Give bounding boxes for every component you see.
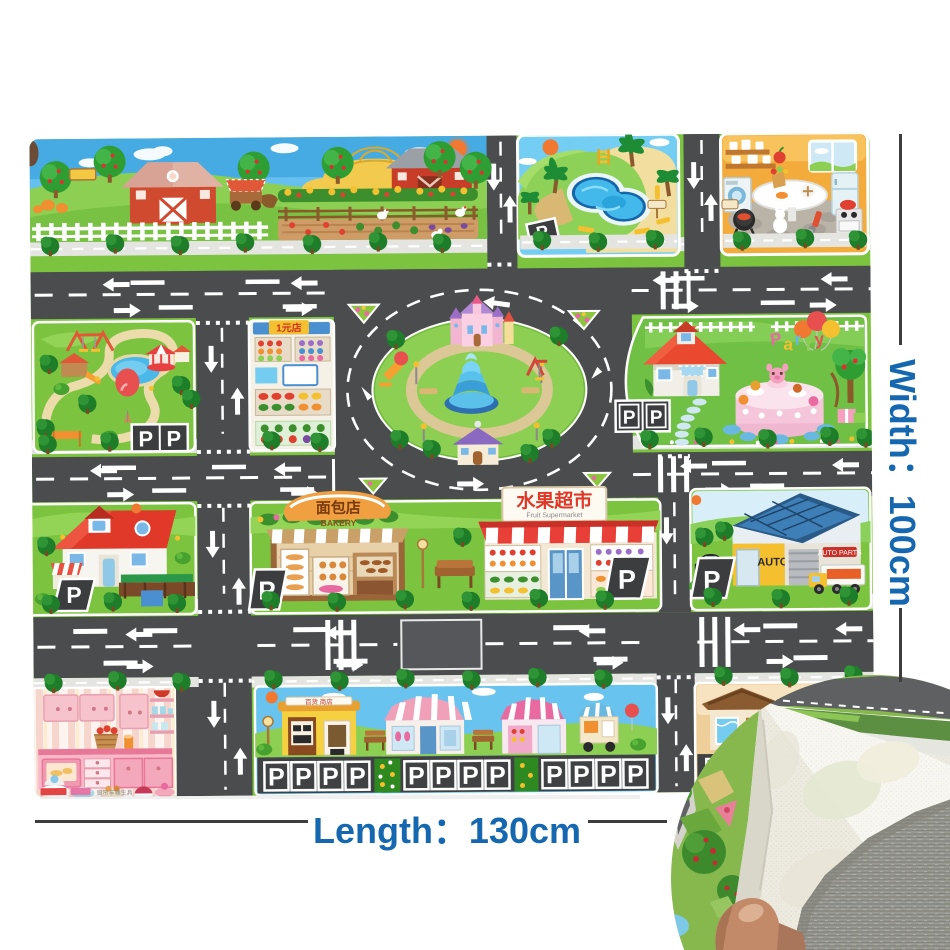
svg-text:P: P	[573, 761, 590, 789]
svg-text:P: P	[600, 761, 617, 789]
svg-text:百货 商店: 百货 商店	[305, 697, 333, 706]
svg-text:P: P	[349, 763, 366, 791]
svg-text:P: P	[435, 762, 452, 790]
svg-text:P: P	[546, 761, 563, 789]
svg-text:P: P	[268, 763, 285, 791]
svg-text:P: P	[462, 762, 479, 790]
svg-text:P: P	[650, 407, 663, 428]
svg-text:P: P	[166, 426, 181, 451]
svg-text:P: P	[295, 763, 312, 791]
svg-text:AUTO: AUTO	[757, 556, 789, 568]
svg-text:Fruit Supermarket: Fruit Supermarket	[526, 512, 582, 519]
svg-text:AUTO PARTS: AUTO PARTS	[818, 550, 862, 557]
svg-text:P: P	[618, 565, 636, 595]
svg-text:水果超市: 水果超市	[516, 489, 592, 513]
svg-text:P: P	[408, 762, 425, 790]
svg-text:P: P	[322, 763, 339, 791]
svg-text:1元店: 1元店	[276, 321, 302, 334]
svg-text:P: P	[489, 762, 506, 790]
svg-text:BAKERY: BAKERY	[321, 518, 357, 528]
svg-text:P: P	[623, 408, 636, 429]
svg-text:P: P	[138, 426, 153, 451]
svg-text:P: P	[66, 582, 82, 608]
svg-text:面包店: 面包店	[316, 499, 361, 517]
